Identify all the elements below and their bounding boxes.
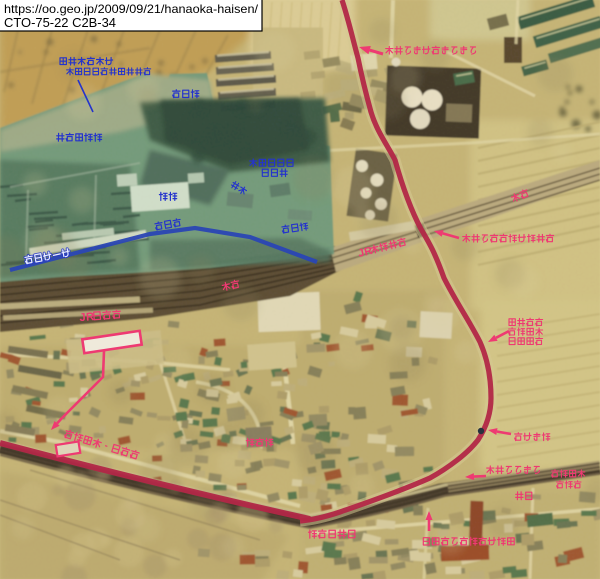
svg-text:R: R (86, 311, 95, 324)
svg-text:https://oo.geo.jp/2009/09/21/h: https://oo.geo.jp/2009/09/21/hanaoka-hai… (4, 2, 259, 16)
svg-text:CTO-75-22 C2B-34: CTO-75-22 C2B-34 (4, 16, 116, 30)
